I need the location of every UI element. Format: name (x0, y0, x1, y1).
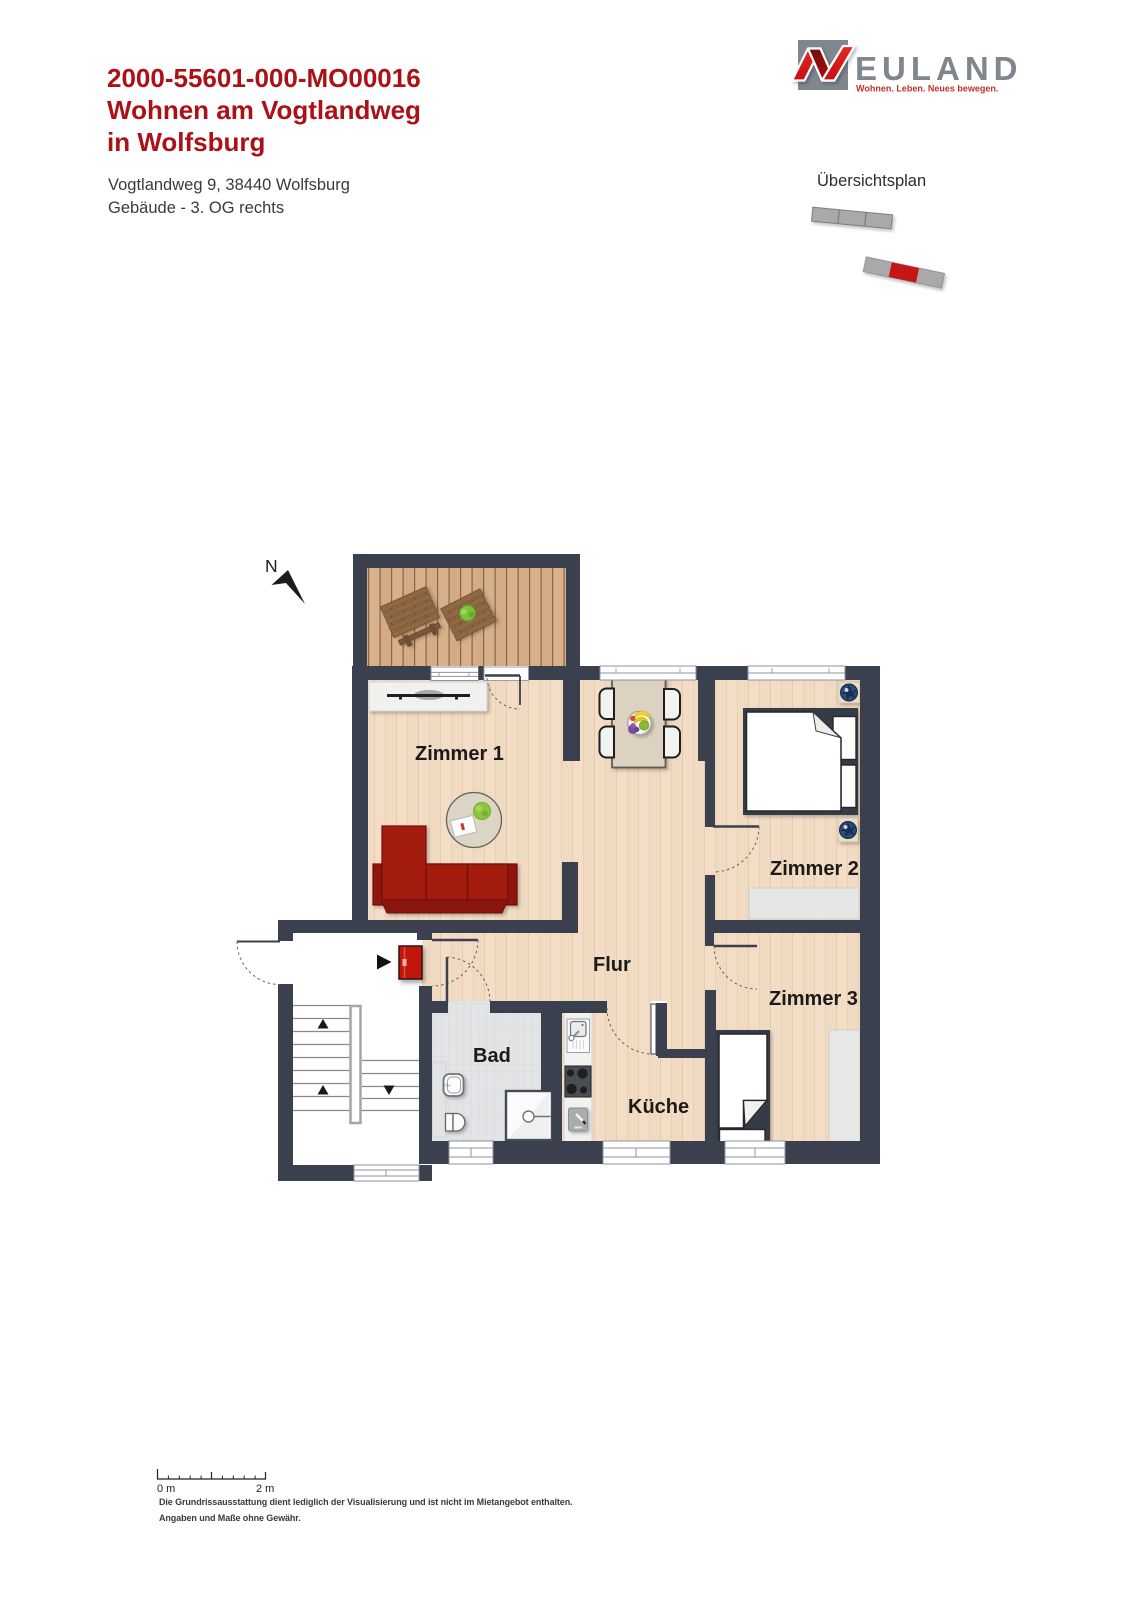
svg-text:Flur: Flur (593, 954, 631, 976)
svg-text:Küche: Küche (628, 1096, 689, 1118)
svg-text:2000-55601-000-MO00016: 2000-55601-000-MO00016 (107, 63, 421, 93)
svg-text:Wohnen am Vogtlandweg: Wohnen am Vogtlandweg (107, 95, 421, 125)
svg-text:Bad: Bad (473, 1045, 511, 1067)
svg-text:Zimmer 3: Zimmer 3 (769, 988, 858, 1010)
svg-text:Zimmer 1: Zimmer 1 (415, 743, 504, 765)
svg-text:Vogtlandweg 9, 38440 Wolfsburg: Vogtlandweg 9, 38440 Wolfsburg (108, 176, 350, 194)
svg-text:2 m: 2 m (256, 1483, 274, 1495)
svg-text:Gebäude - 3. OG rechts: Gebäude - 3. OG rechts (108, 199, 284, 217)
svg-text:in Wolfsburg: in Wolfsburg (107, 127, 265, 157)
svg-text:Die Grundrissausstattung dient: Die Grundrissausstattung dient lediglich… (159, 1497, 573, 1507)
svg-text:N: N (265, 556, 278, 576)
svg-text:0 m: 0 m (157, 1483, 175, 1495)
svg-text:Wohnen. Leben. Neues bewegen.: Wohnen. Leben. Neues bewegen. (856, 84, 998, 94)
svg-text:EULAND: EULAND (855, 50, 1023, 87)
svg-text:Zimmer 2: Zimmer 2 (770, 858, 859, 880)
svg-text:Übersichtsplan: Übersichtsplan (817, 172, 926, 190)
svg-text:Oex: Oex (445, 1084, 452, 1088)
svg-text:Angaben und Maße ohne Gewähr.: Angaben und Maße ohne Gewähr. (159, 1513, 301, 1523)
